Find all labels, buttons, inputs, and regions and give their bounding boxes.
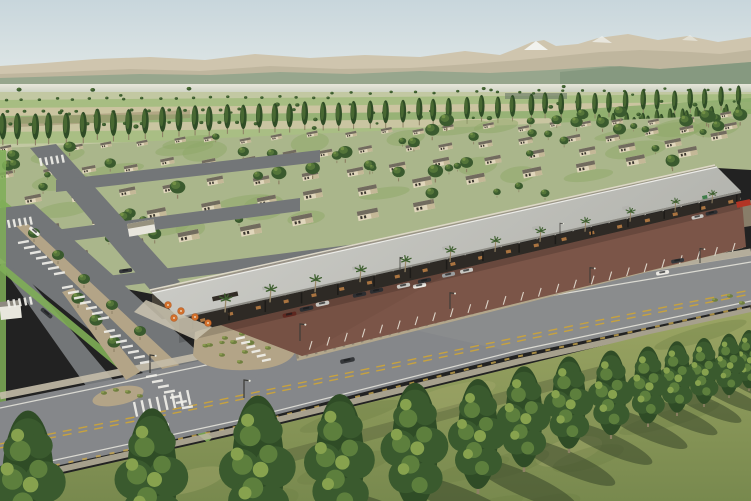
white-building <box>0 300 22 320</box>
aerial-rendering <box>0 0 751 501</box>
rendering-canvas <box>0 0 751 501</box>
